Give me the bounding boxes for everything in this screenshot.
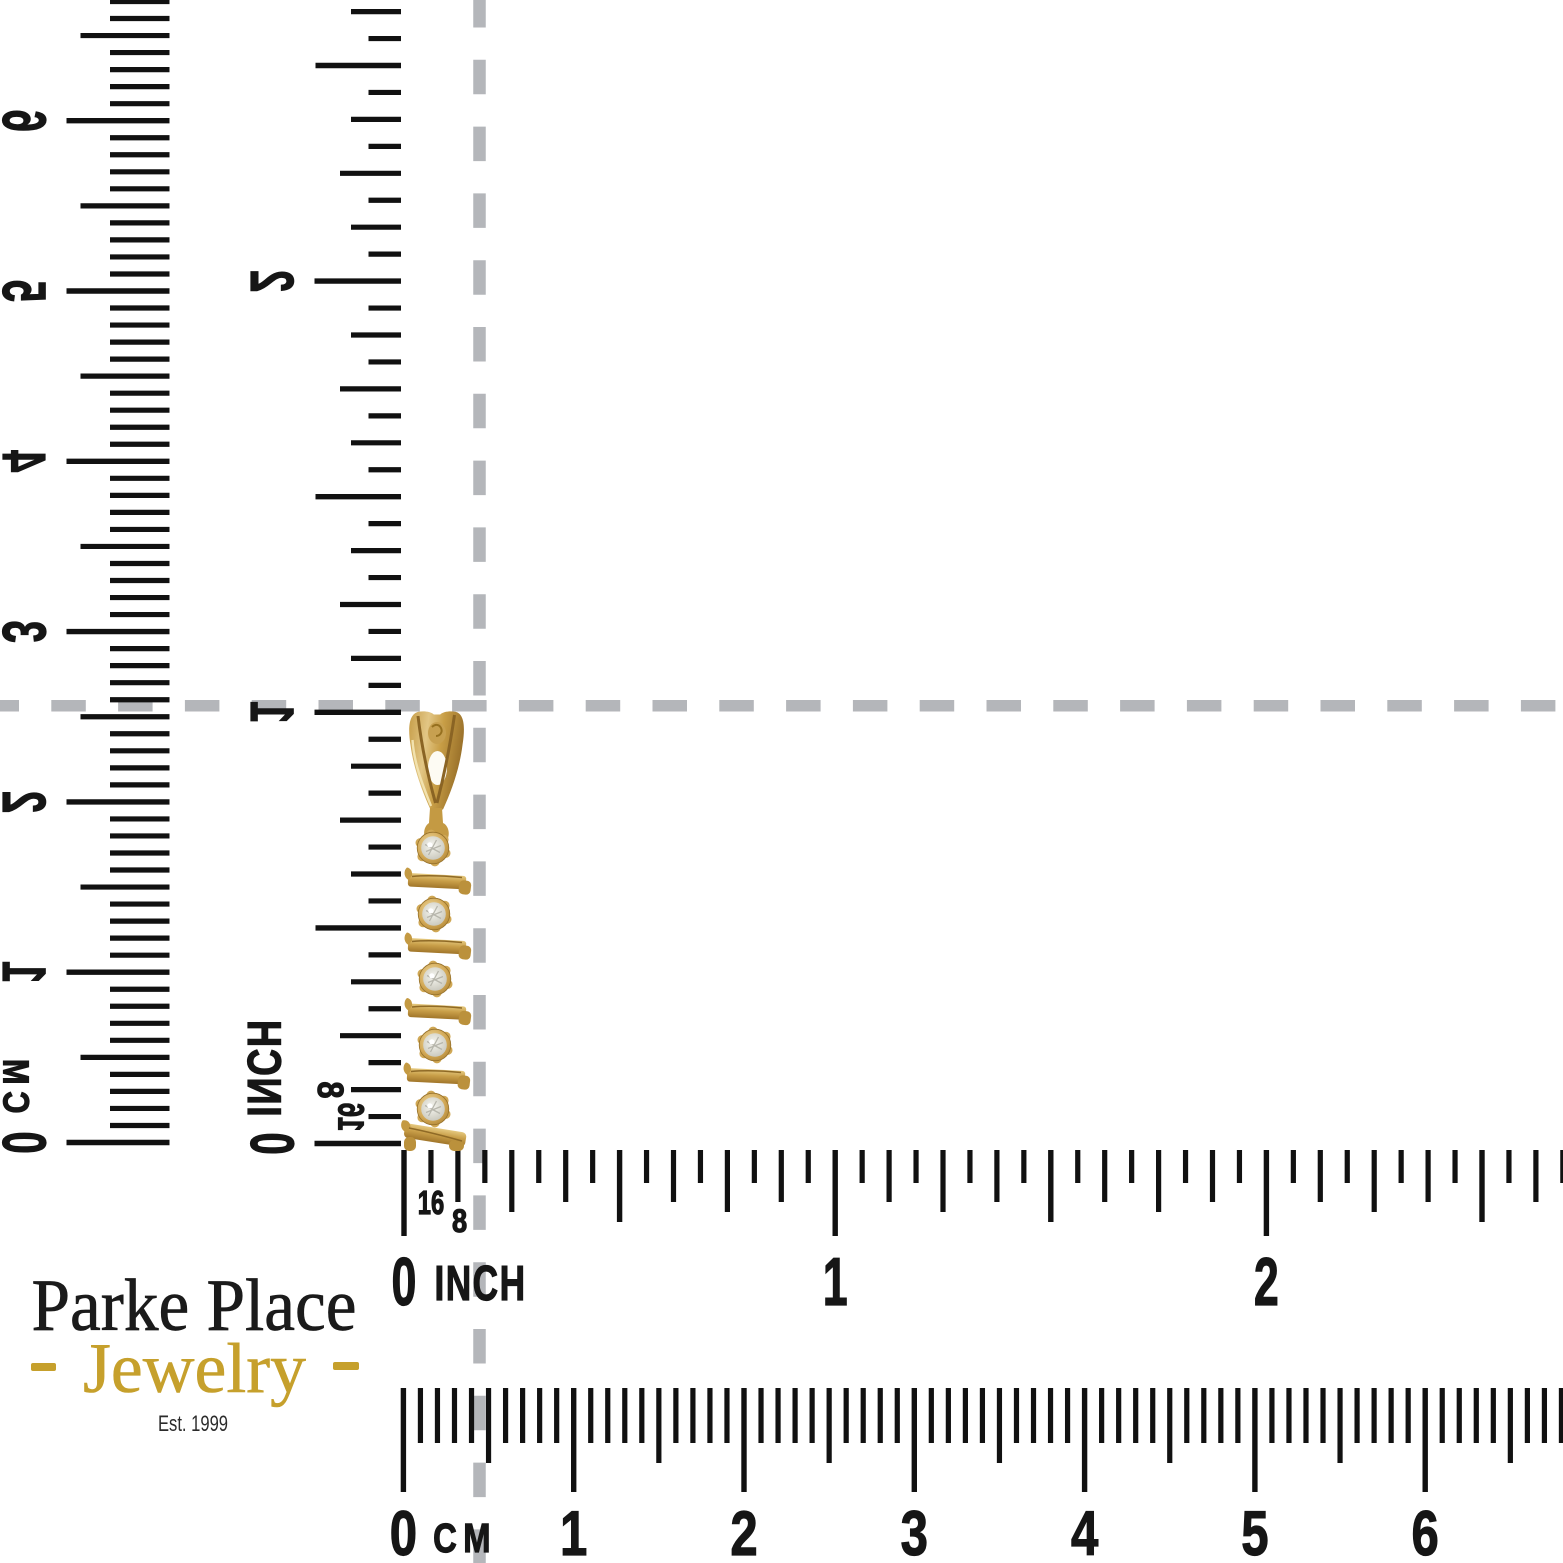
svg-text:5: 5 bbox=[0, 280, 58, 302]
svg-text:1: 1 bbox=[238, 701, 306, 723]
svg-text:0: 0 bbox=[392, 1245, 417, 1321]
svg-text:3: 3 bbox=[0, 620, 58, 642]
svg-text:CM: CM bbox=[433, 1514, 497, 1560]
svg-text:0: 0 bbox=[390, 1498, 417, 1563]
svg-text:1: 1 bbox=[0, 961, 58, 983]
svg-text:2: 2 bbox=[238, 270, 306, 292]
svg-text:3: 3 bbox=[901, 1498, 928, 1563]
svg-text:6: 6 bbox=[1412, 1498, 1439, 1563]
svg-text:5: 5 bbox=[1241, 1498, 1268, 1563]
svg-text:INCH: INCH bbox=[435, 1256, 527, 1311]
svg-text:16: 16 bbox=[330, 1103, 370, 1132]
svg-text:2: 2 bbox=[1254, 1245, 1279, 1321]
svg-text:CM: CM bbox=[0, 1052, 35, 1113]
svg-text:6: 6 bbox=[0, 110, 58, 132]
svg-text:1: 1 bbox=[560, 1498, 587, 1563]
svg-text:4: 4 bbox=[1071, 1498, 1099, 1563]
svg-text:Est. 1999: Est. 1999 bbox=[158, 1411, 228, 1436]
svg-text:8: 8 bbox=[452, 1204, 467, 1240]
svg-text:4: 4 bbox=[0, 450, 58, 473]
svg-text:0: 0 bbox=[238, 1132, 306, 1154]
svg-text:Jewelry: Jewelry bbox=[83, 1330, 306, 1408]
svg-text:16: 16 bbox=[418, 1185, 444, 1222]
svg-text:8: 8 bbox=[310, 1081, 350, 1098]
svg-text:1: 1 bbox=[823, 1245, 848, 1321]
svg-text:INCH: INCH bbox=[237, 1018, 290, 1116]
svg-text:2: 2 bbox=[0, 791, 58, 813]
svg-text:2: 2 bbox=[730, 1498, 757, 1563]
svg-text:0: 0 bbox=[0, 1131, 58, 1153]
